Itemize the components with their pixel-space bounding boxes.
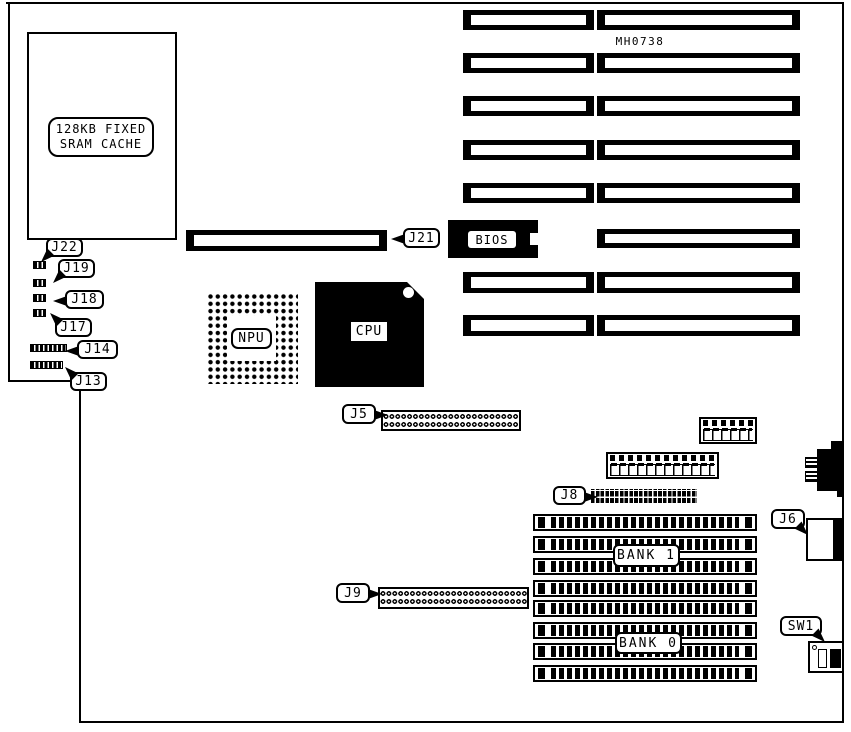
motherboard-diagram: 128KB FIXED SRAM CACHE MH0738 J21 BIOS N… [0, 0, 851, 732]
sw1-switch-off [818, 649, 827, 668]
keyboard-connector-footprint-j6 [806, 518, 844, 561]
power-connector-sockets [703, 429, 753, 441]
isa-slot-6-right [597, 229, 800, 248]
simm-socket-bank0-row4 [533, 665, 757, 682]
jumper-j18 [33, 294, 46, 302]
callout-j19: J19 [58, 259, 95, 278]
dip-switch-sw1 [808, 641, 844, 673]
simm-clip [538, 517, 545, 528]
simm-pin-strip [551, 603, 739, 614]
power-connector-large [606, 452, 719, 479]
board-outline-left-lower [79, 380, 81, 723]
simm-pin-strip [551, 517, 739, 528]
keyboard-connector-pin-block-1 [805, 457, 818, 468]
isa-slot-2-right [597, 53, 800, 73]
sw1-pin1-mark [812, 645, 817, 650]
isa-slot-3-left [463, 96, 594, 116]
callout-j22: J22 [46, 238, 83, 257]
keyboard-connector-pin-block-2 [805, 471, 818, 482]
jumper-j14 [30, 344, 67, 352]
cpu-label: CPU [351, 322, 387, 341]
board-outline-bottom [79, 721, 844, 723]
keyboard-connector-body [817, 449, 844, 491]
callout-j5: J5 [342, 404, 376, 424]
isa-slot-2-left [463, 53, 594, 73]
callout-j14: J14 [77, 340, 118, 359]
power-connector-sockets [610, 464, 715, 476]
simm-clip [745, 539, 752, 550]
callout-sw1: SW1 [780, 616, 822, 636]
cache-label-line1: 128KB FIXED [56, 122, 146, 137]
simm-clip [745, 625, 752, 636]
connector-j5 [381, 410, 521, 431]
cache-label: 128KB FIXED SRAM CACHE [48, 117, 154, 157]
simm-clip [538, 583, 545, 594]
simm-socket-bank0-row1 [533, 600, 757, 617]
jumper-j19 [33, 279, 46, 287]
callout-j8: J8 [553, 486, 586, 505]
simm-socket-bank1-row1 [533, 514, 757, 531]
jumper-j13 [30, 361, 63, 369]
simm-clip [538, 646, 545, 657]
callout-j17: J17 [55, 318, 92, 337]
callout-j21: J21 [403, 228, 440, 248]
connector-j9 [378, 587, 529, 609]
isa-slot-3-right [597, 96, 800, 116]
footprint-shaded-band [833, 520, 842, 559]
isa-slot-5-left [463, 183, 594, 203]
isa-slot-5-right [597, 183, 800, 203]
power-connector-pins [703, 420, 753, 426]
keyboard-connector-bottom-step [837, 490, 844, 497]
simm-clip [745, 646, 752, 657]
connector-j8 [591, 489, 697, 503]
board-outline-right [842, 2, 844, 723]
isa-slot-8-left [463, 315, 594, 336]
power-connector-pins [610, 455, 715, 461]
npu-label: NPU [231, 328, 272, 349]
bank0-label: BANK 0 [615, 632, 682, 654]
slot-j21 [186, 230, 387, 251]
simm-clip [538, 625, 545, 636]
bios-label: BIOS [468, 231, 516, 248]
simm-clip [538, 539, 545, 550]
simm-pin-strip [551, 583, 739, 594]
cpu-pin1-dot [403, 287, 414, 298]
isa-slot-4-right [597, 140, 800, 160]
bios-chip-notch [530, 233, 538, 245]
board-outline-top [6, 2, 844, 4]
power-connector-small [699, 417, 757, 444]
simm-clip [745, 603, 752, 614]
isa-slot-1-right [597, 10, 800, 30]
isa-slot-7-right [597, 272, 800, 293]
simm-clip [538, 603, 545, 614]
isa-slot-4-left [463, 140, 594, 160]
simm-clip [538, 668, 545, 679]
jumper-j17 [33, 309, 46, 317]
bank1-label: BANK 1 [613, 544, 680, 567]
sw1-switch-on [830, 649, 841, 668]
simm-pin-strip [551, 668, 739, 679]
model-number: MH0738 [595, 35, 685, 48]
isa-slot-1-left [463, 10, 594, 30]
simm-socket-bank1-row4 [533, 580, 757, 597]
callout-j13: J13 [70, 372, 107, 391]
simm-clip [745, 561, 752, 572]
simm-clip [745, 668, 752, 679]
simm-clip [745, 517, 752, 528]
cache-label-line2: SRAM CACHE [60, 137, 142, 152]
isa-slot-8-right [597, 315, 800, 336]
isa-slot-7-left [463, 272, 594, 293]
callout-j9: J9 [336, 583, 370, 603]
callout-j6: J6 [771, 509, 805, 529]
simm-clip [745, 583, 752, 594]
board-outline-left-upper [8, 2, 10, 382]
simm-clip [538, 561, 545, 572]
callout-j18: J18 [65, 290, 104, 309]
